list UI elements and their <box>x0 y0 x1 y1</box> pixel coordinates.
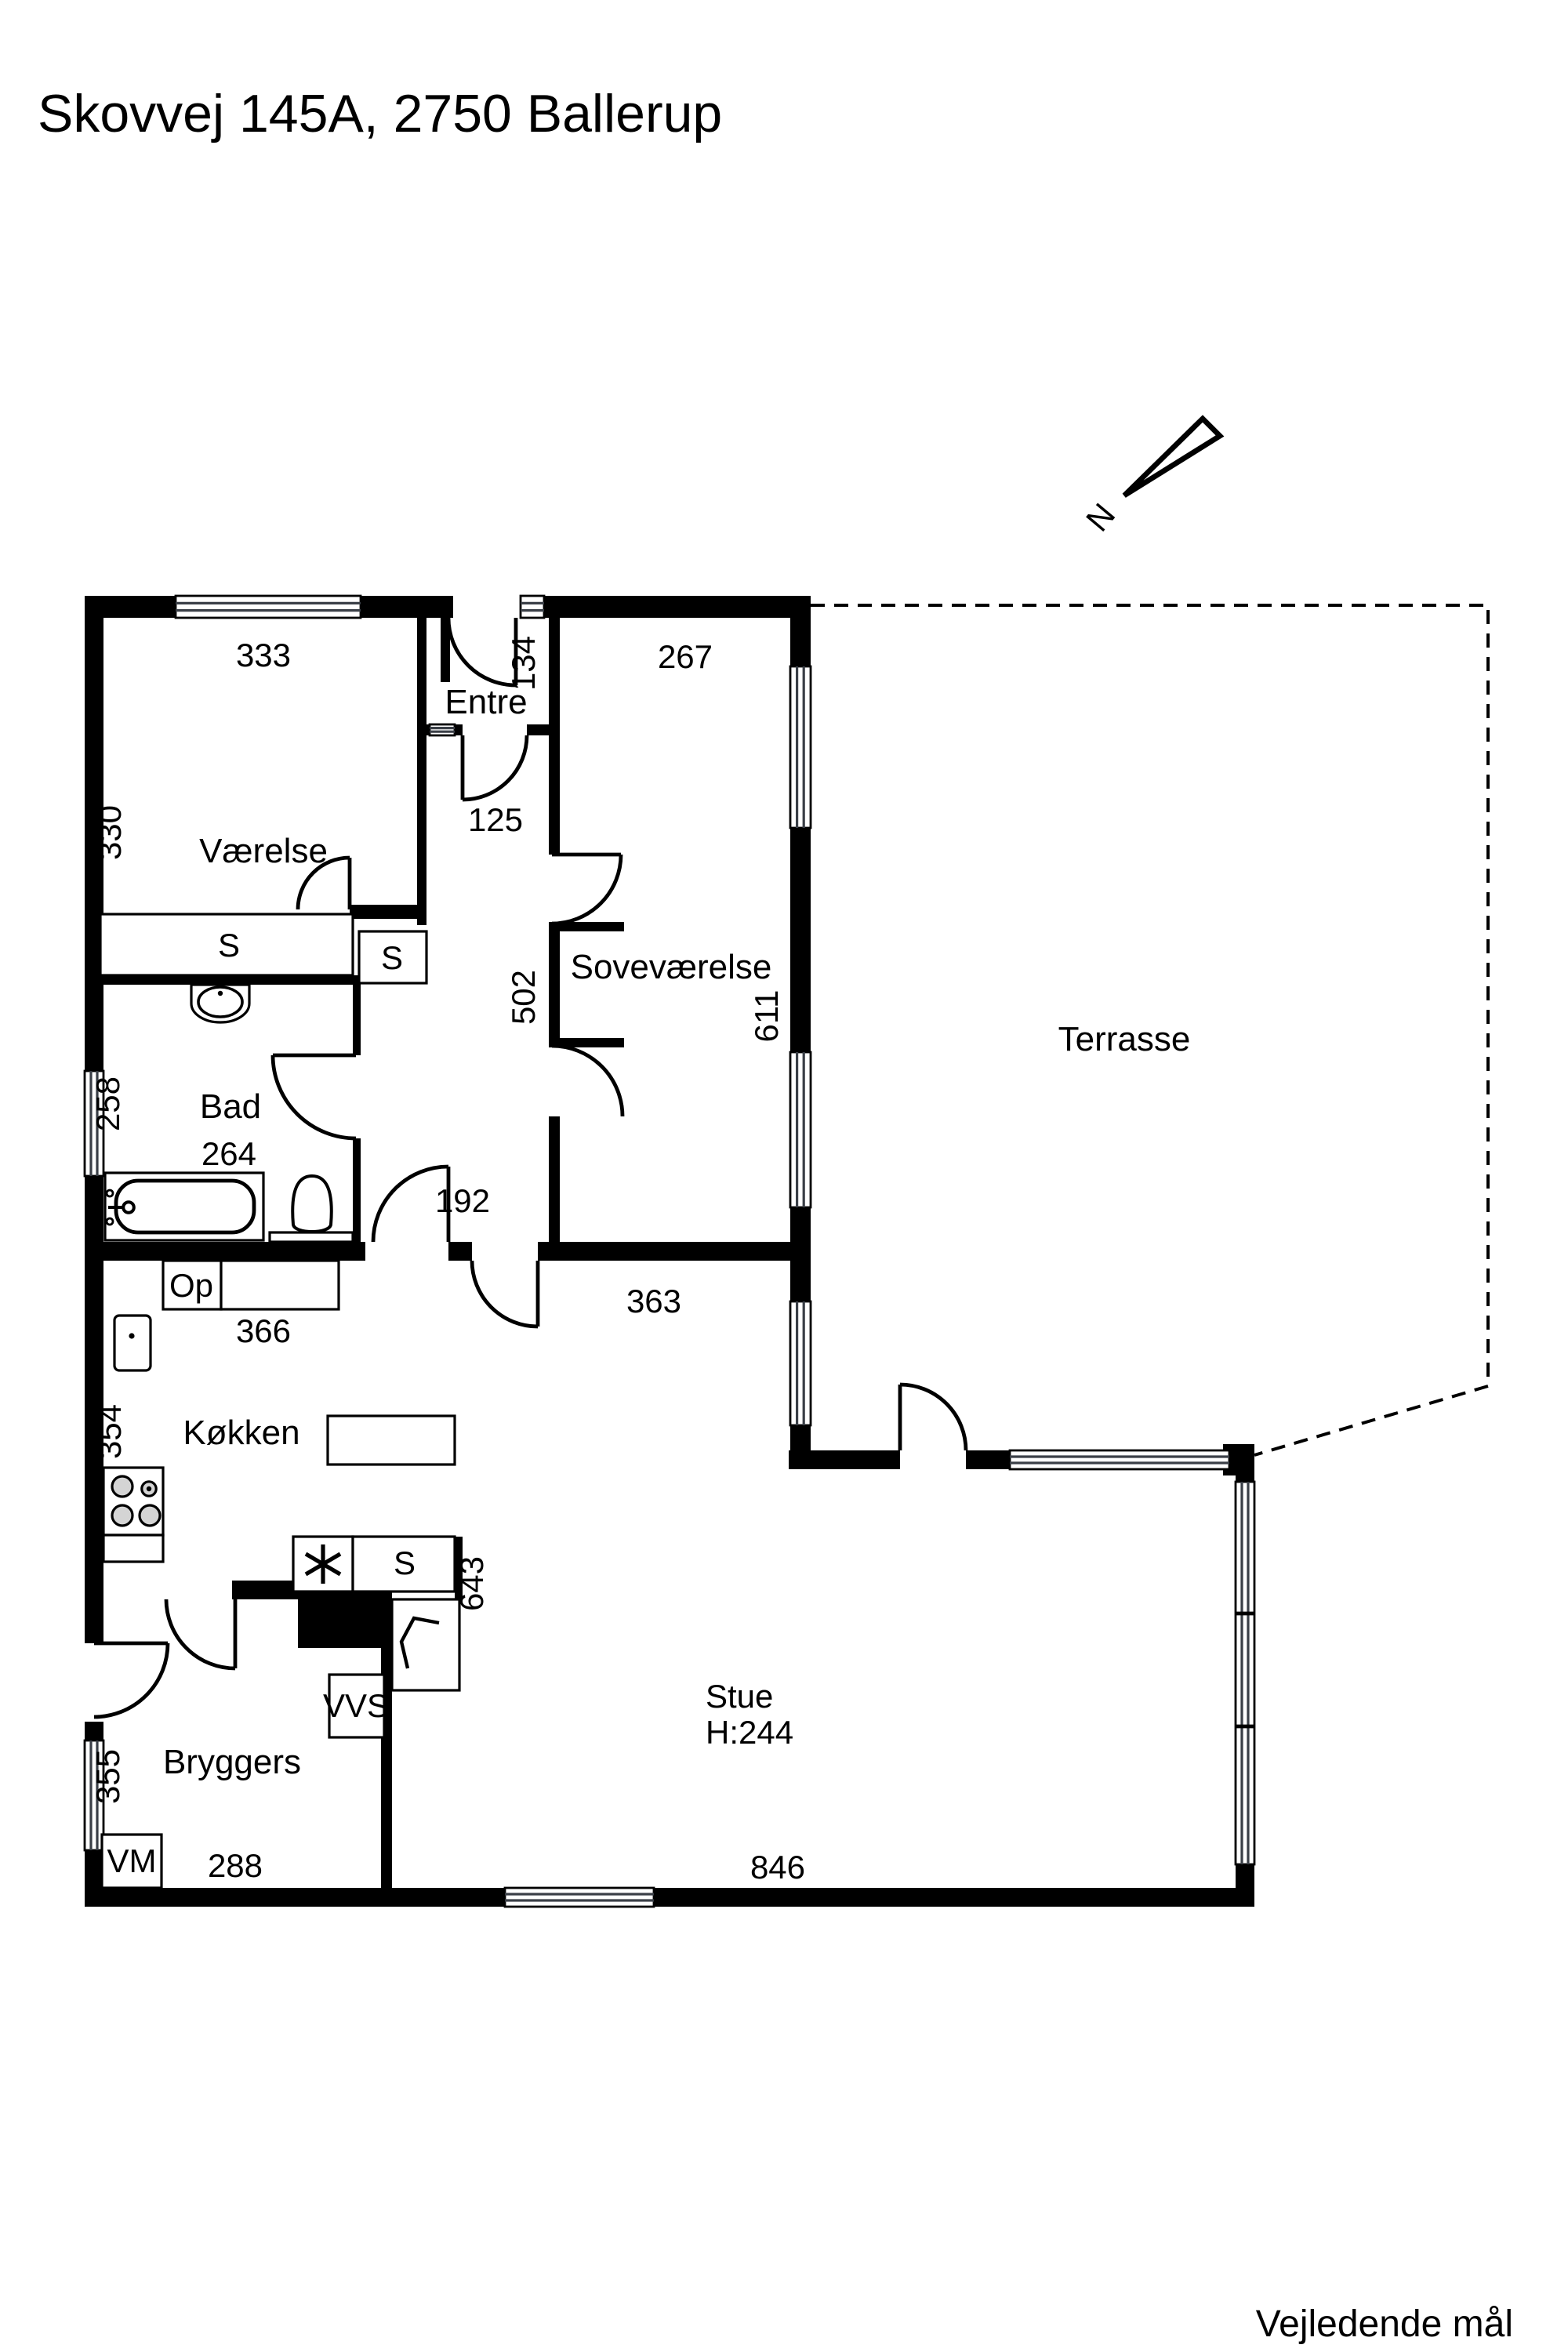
floorplan-drawing: Skovvej 145A, 2750 Ballerup Vejledende m… <box>0 0 1568 2352</box>
sovevaerelse-door-2-icon <box>552 1046 622 1116</box>
room-label-stue: Stue <box>706 1678 773 1715</box>
dim-entre-depth: 134 <box>505 636 542 691</box>
walls <box>85 596 1254 1907</box>
stue-north-window-icon <box>1010 1450 1229 1469</box>
dim-sovevaerelse-width: 267 <box>658 638 713 675</box>
stove-counter <box>103 1535 163 1562</box>
dim-koekken-top: 366 <box>236 1312 291 1349</box>
dim-entre-passage: 125 <box>468 801 523 838</box>
closet-big-label: S <box>218 927 240 964</box>
stue-south-window-icon <box>505 1888 654 1907</box>
sovevaerelse-window-3-icon <box>790 1301 811 1425</box>
stue-terrasse-door-icon <box>900 1385 966 1450</box>
entre-interior-window-icon <box>430 724 455 735</box>
bathtub-icon <box>105 1173 263 1240</box>
dim-sovevaerelse-bottom: 363 <box>626 1283 681 1319</box>
vvs-label: VVS <box>323 1687 389 1724</box>
entry-sidelight-icon <box>521 596 544 618</box>
fixtures <box>100 914 459 1888</box>
dim-bad-window: 258 <box>89 1076 126 1131</box>
vaerelse-window-icon <box>176 596 361 618</box>
sink-icon <box>191 985 249 1022</box>
dim-stue-width: 846 <box>750 1849 805 1886</box>
sovevaerelse-window-2-icon <box>790 1052 811 1207</box>
room-label-bad: Bad <box>200 1087 261 1126</box>
room-label-bryggers: Bryggers <box>163 1743 301 1781</box>
dim-vaerelse-depth: 330 <box>91 805 128 860</box>
room-label-koekken: Køkken <box>183 1414 299 1452</box>
room-label-sovevaerelse: Soveværelse <box>571 948 772 986</box>
floorplan-page: Skovvej 145A, 2750 Ballerup Vejledende m… <box>0 0 1568 2352</box>
fridge-icon <box>114 1316 151 1370</box>
toilet-icon <box>270 1176 353 1242</box>
fireplace-icon <box>392 1599 459 1690</box>
dim-bad-width: 264 <box>201 1135 256 1172</box>
dim-koekken-side: 354 <box>91 1404 128 1459</box>
oven-cabinet-label: Op <box>169 1267 213 1304</box>
bad-door-icon <box>273 1055 356 1138</box>
closet-kitchen-label: S <box>394 1544 416 1581</box>
north-label: N <box>1079 496 1123 538</box>
freezer-box <box>293 1537 353 1592</box>
room-label-vaerelse: Værelse <box>199 832 328 870</box>
kitchen-counter <box>221 1261 339 1309</box>
dim-sovevaerelse-east: 611 <box>748 990 785 1043</box>
stue-east-window-icon <box>1236 1482 1254 1864</box>
sovevaerelse-door-icon <box>552 855 621 924</box>
stove-icon <box>103 1468 163 1535</box>
koekken-bryggers-door-icon <box>166 1599 235 1668</box>
sovevaerelse-window-1-icon <box>790 666 811 828</box>
footer-note: Vejledende mål <box>1256 2303 1513 2345</box>
kitchen-island <box>328 1416 455 1465</box>
hall-stue-door-icon <box>472 1261 538 1327</box>
page-title: Skovvej 145A, 2750 Ballerup <box>38 84 722 143</box>
dim-vaerelse-width: 333 <box>236 637 291 673</box>
washing-machine-label: VM <box>107 1842 157 1879</box>
dim-bryggers-window: 355 <box>89 1749 126 1804</box>
room-label-terrasse: Terrasse <box>1058 1020 1191 1058</box>
stue-ceiling-height: H:244 <box>706 1714 793 1751</box>
dim-koekken-east: 643 <box>453 1556 490 1611</box>
dim-sovevaerelse-depth: 502 <box>505 970 542 1025</box>
north-arrow-icon: N <box>1079 419 1220 538</box>
dim-bryggers-width: 288 <box>208 1847 263 1884</box>
closet-small-label: S <box>381 939 403 976</box>
bryggers-exterior-door-icon <box>94 1643 168 1717</box>
entre-hall-door-icon <box>463 735 527 800</box>
dim-corridor: 192 <box>435 1182 490 1219</box>
